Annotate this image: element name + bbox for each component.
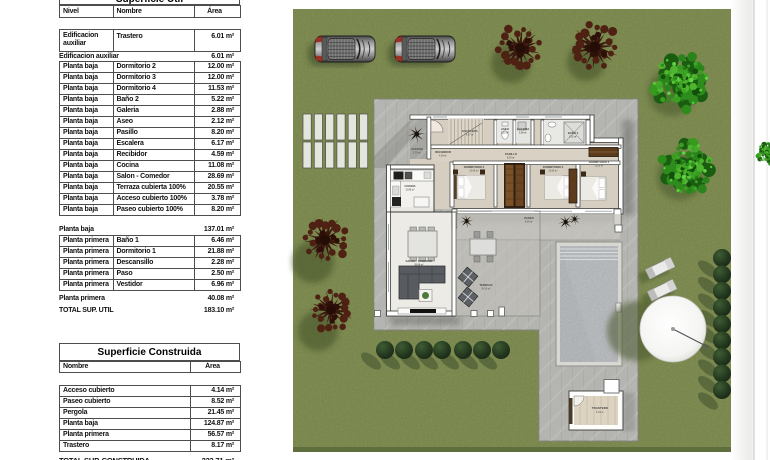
svg-text:BAÑO 2: BAÑO 2: [568, 130, 579, 135]
svg-text:PASEO: PASEO: [524, 216, 534, 220]
svg-text:DORMITORIO 2: DORMITORIO 2: [464, 165, 485, 169]
svg-text:6.01 m: 6.01 m: [596, 410, 604, 414]
svg-text:ASEO: ASEO: [501, 127, 510, 131]
svg-text:GALERIA: GALERIA: [517, 127, 530, 131]
svg-text:RECIBIDOR: RECIBIDOR: [435, 150, 451, 154]
svg-text:DORMITORIO 3: DORMITORIO 3: [543, 165, 564, 169]
svg-text:PASILLO: PASILLO: [505, 152, 518, 156]
svg-text:COCINA: COCINA: [404, 184, 415, 188]
svg-text:ACCESO: ACCESO: [411, 147, 424, 151]
svg-text:SALON - COMEDOR: SALON - COMEDOR: [406, 259, 433, 263]
svg-text:TERRAZA: TERRAZA: [479, 283, 492, 287]
svg-text:TRASTERO: TRASTERO: [592, 406, 609, 410]
svg-text:DORMITORIO 4: DORMITORIO 4: [589, 160, 610, 164]
svg-text:ESCALERA: ESCALERA: [462, 129, 477, 133]
